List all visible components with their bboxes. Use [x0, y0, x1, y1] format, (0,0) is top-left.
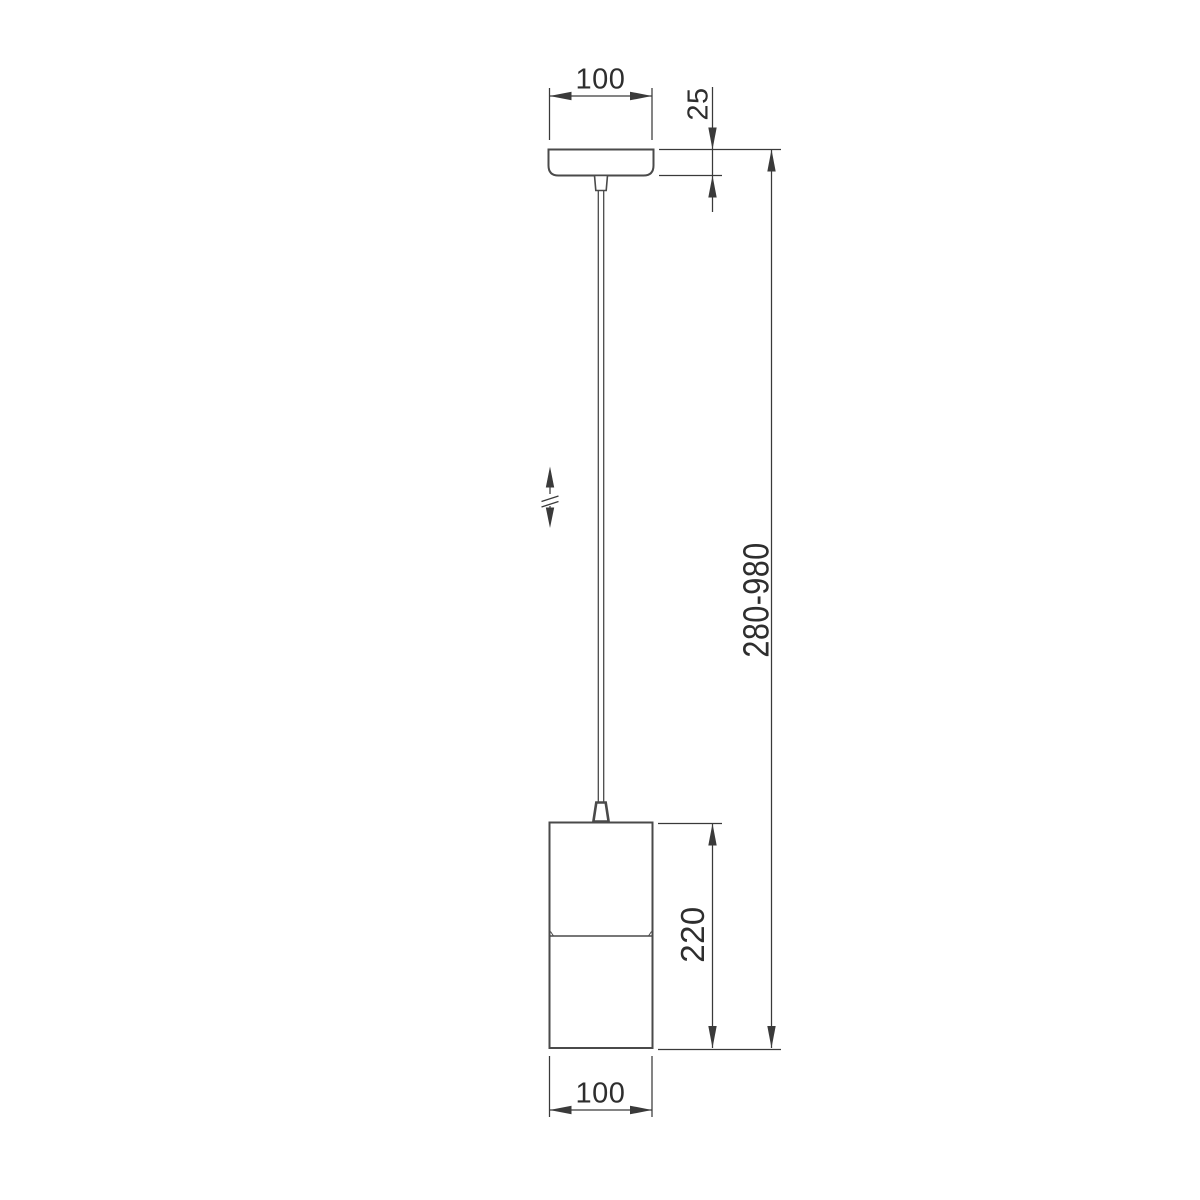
- height-adjustment-icon: [542, 467, 559, 529]
- arrowhead-down: [708, 1026, 716, 1048]
- adjust-down-arrowhead: [546, 508, 554, 529]
- ceiling-canopy: [549, 150, 654, 176]
- cord-grip: [593, 803, 608, 822]
- arrowhead-right: [630, 1106, 652, 1115]
- arrowhead-up: [708, 824, 716, 846]
- body-width-label: 100: [576, 1078, 626, 1110]
- technical-drawing-canvas: 100 25 280-980 220 100: [0, 0, 1200, 1200]
- adjust-up-arrowhead: [546, 467, 554, 488]
- arrowhead-left: [550, 92, 572, 101]
- arrowhead-up: [708, 176, 716, 198]
- arrowhead-left: [550, 1106, 572, 1115]
- arrowhead-down: [767, 1026, 775, 1048]
- lamp-fixture: [549, 150, 654, 1049]
- overall-height-label: 280-980: [737, 542, 777, 657]
- arrowhead-down: [708, 128, 716, 150]
- suspension-cable: [598, 191, 603, 804]
- arrowhead-right: [630, 92, 652, 101]
- canopy-stem: [595, 176, 608, 191]
- pendant-lamp-drawing: 100 25 280-980 220 100: [0, 0, 1200, 1200]
- canopy-height-label: 25: [683, 87, 715, 120]
- dimension-canopy-height: [659, 87, 781, 212]
- body-height-label: 220: [674, 906, 711, 963]
- arrowhead-up: [767, 150, 775, 172]
- canopy-width-label: 100: [576, 64, 626, 96]
- dimension-canopy-width: [550, 88, 653, 140]
